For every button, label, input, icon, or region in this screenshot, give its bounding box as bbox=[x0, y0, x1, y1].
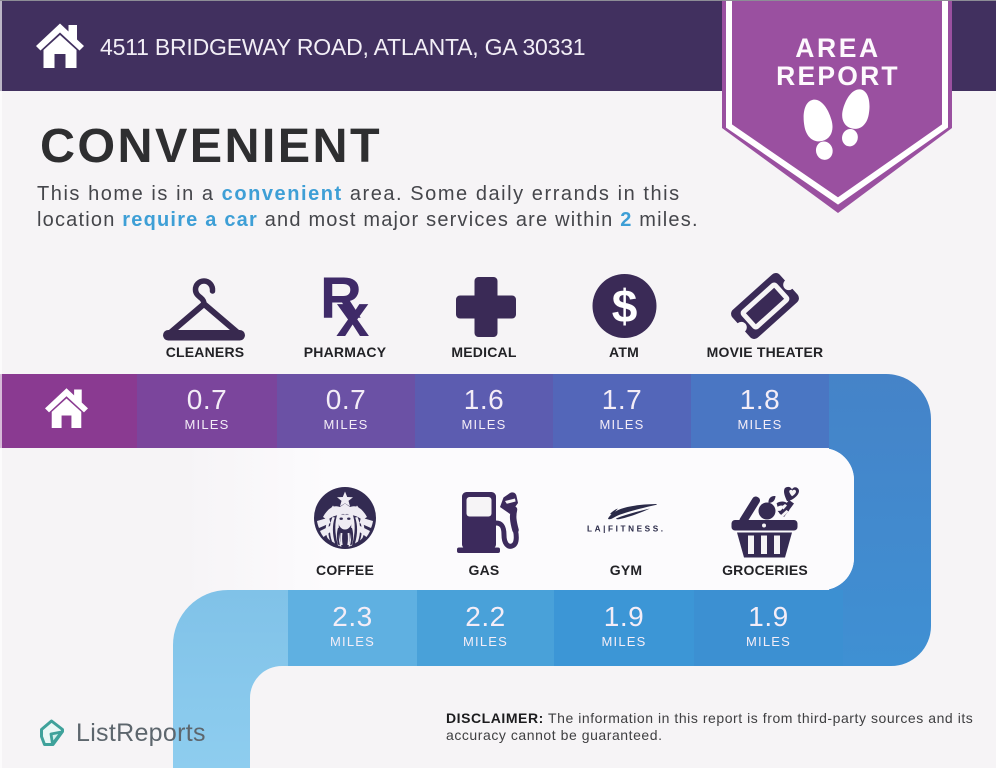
svg-text:AREA: AREA bbox=[795, 33, 881, 63]
svg-text:$: $ bbox=[612, 280, 638, 332]
svg-text:LA|FITNESS.: LA|FITNESS. bbox=[587, 525, 666, 534]
svg-text:REPORT: REPORT bbox=[776, 61, 900, 91]
svg-text:x: x bbox=[336, 282, 369, 342]
